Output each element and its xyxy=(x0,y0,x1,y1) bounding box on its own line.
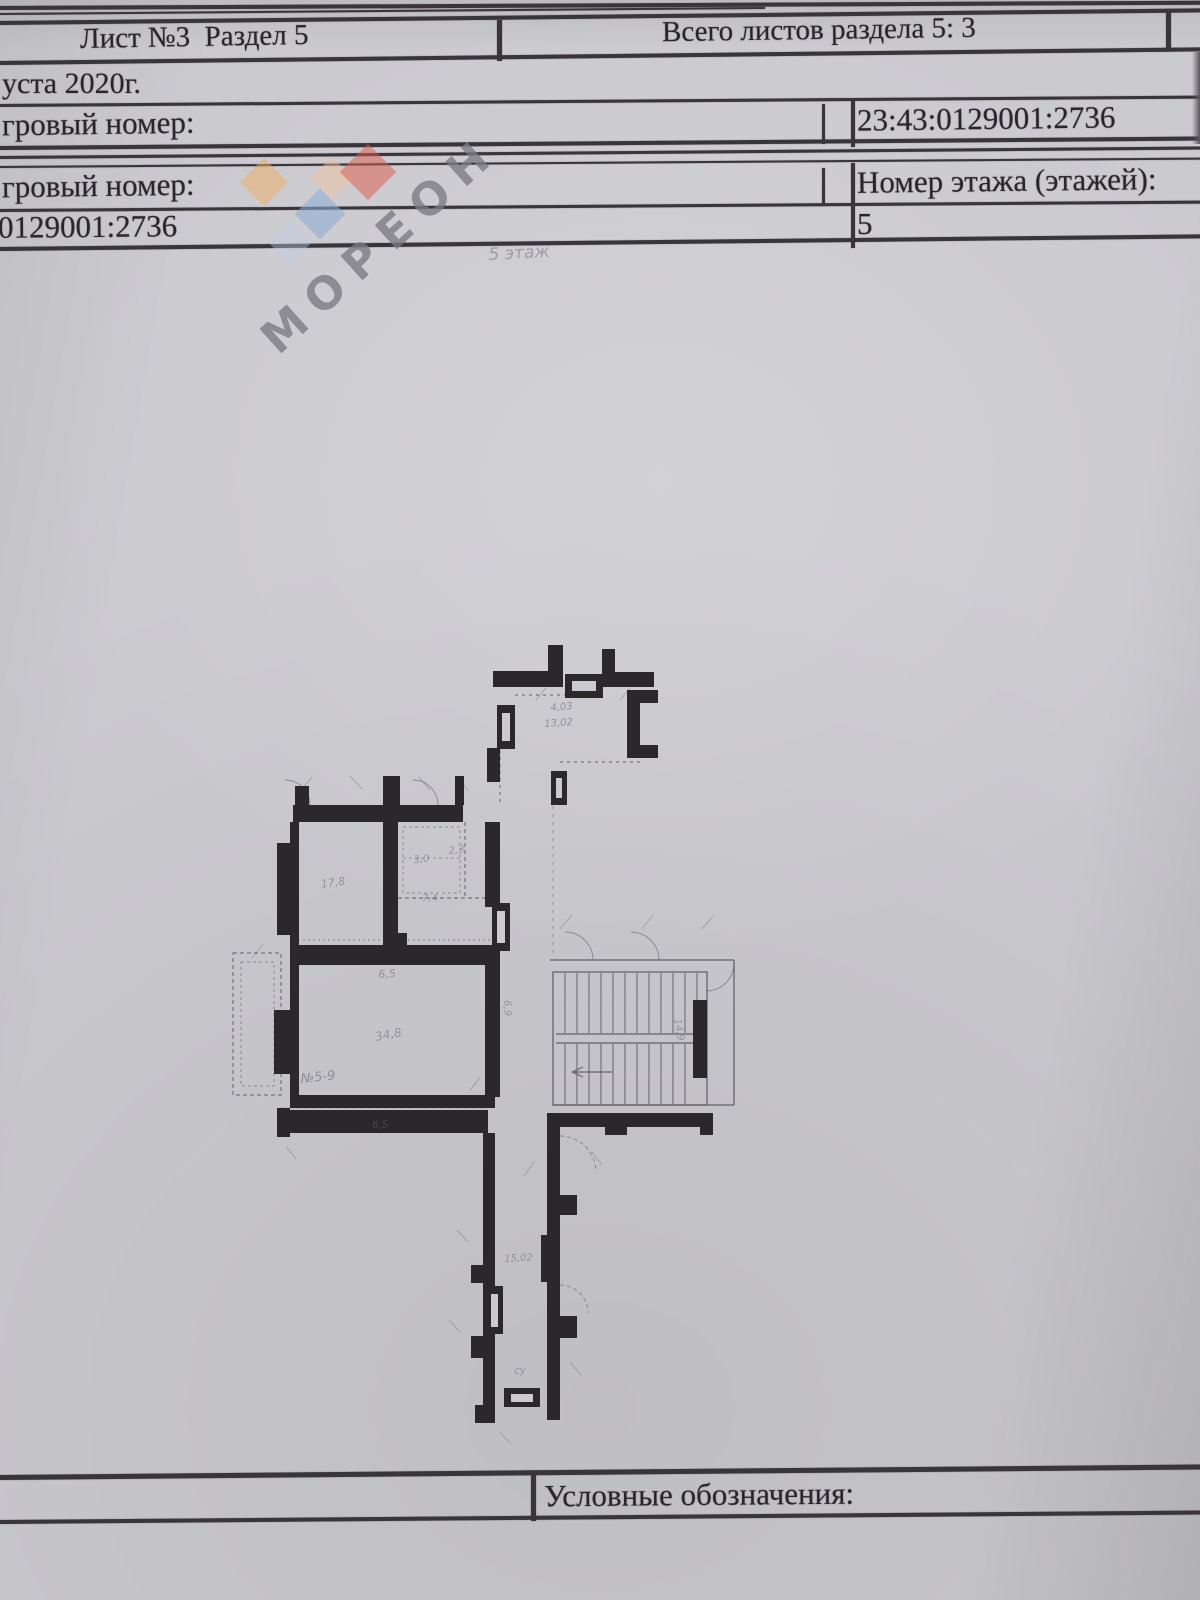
header-right-border xyxy=(1166,9,1171,51)
stray-cell-border-1 xyxy=(822,104,825,144)
cadastral-label: гровый номер: xyxy=(2,107,195,142)
pencil-annotation: су xyxy=(514,1365,526,1377)
legend-title: Условные обозначения: xyxy=(544,1478,854,1513)
floor-number-label: Номер этажа (этажей): xyxy=(857,163,1157,199)
cadastral-label-2: гровый номер: xyxy=(2,169,195,204)
door-arcs-group xyxy=(285,780,734,1313)
header-cell-divider xyxy=(497,20,502,61)
pencil-annotation: 6,5 xyxy=(378,967,396,981)
cadastral-value: 23:43:0129001:2736 xyxy=(857,101,1116,137)
scanned-document-page: Лист №3 Раздел 5 Всего листов раздела 5:… xyxy=(0,0,1200,1600)
pencil-annotation: 15,02 xyxy=(504,1253,533,1265)
pencil-annotation: 7,4 xyxy=(422,893,438,904)
floor-number-value: 5 xyxy=(857,208,873,241)
stray-cell-border-2 xyxy=(822,168,825,206)
value-cell-left-border-2 xyxy=(851,163,855,248)
pencil-ticks-group xyxy=(252,688,713,1444)
cadastral-value-2: 0129001:2736 xyxy=(0,210,177,244)
pencil-annotation: 13,02 xyxy=(544,717,573,730)
date-fragment: уста 2020г. xyxy=(2,68,141,100)
pencil-annotation: 2,3 xyxy=(448,844,465,857)
sheet-section-label: Лист №3 Раздел 5 xyxy=(80,20,309,54)
legend-cell-divider xyxy=(531,1471,536,1521)
pencil-annotation: 6,9 xyxy=(501,1000,513,1016)
value-cell-left-border-1 xyxy=(851,101,855,147)
pencil-annotation: 4,03 xyxy=(550,701,573,714)
pencil-annotation: 6,5 xyxy=(372,1119,388,1131)
pencil-annotation: 3,0 xyxy=(413,854,430,866)
total-sheets-label: Всего листов раздела 5: 3 xyxy=(662,13,976,48)
scan-right-edge-shadow xyxy=(1192,52,1200,144)
pencil-annotation: 5 этаж xyxy=(488,242,550,265)
